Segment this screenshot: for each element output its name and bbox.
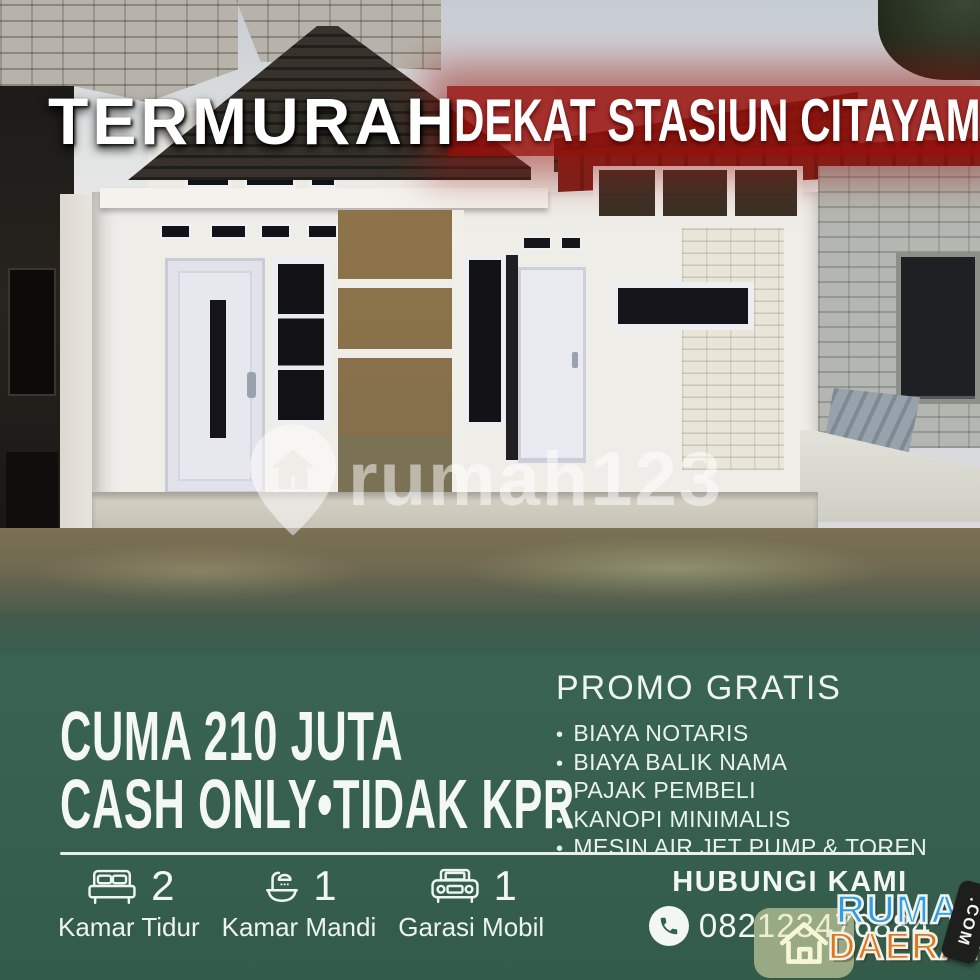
accent-strip	[338, 349, 452, 358]
promo-item-label: BIAYA BALIK NAMA	[573, 749, 787, 776]
bedroom-count: 2	[151, 865, 174, 907]
vent-window	[307, 224, 338, 239]
vent-window	[160, 224, 191, 239]
neighbor-window	[896, 252, 980, 404]
bullet: •	[556, 722, 563, 749]
bedroom-label: Kamar Tidur	[58, 912, 200, 943]
feature-bedrooms: 2 Kamar Tidur	[58, 863, 200, 943]
garage-count: 1	[494, 865, 517, 907]
promo-item: • BIAYA BALIK NAMA	[556, 749, 956, 778]
green-fade	[0, 568, 980, 660]
bath-icon	[261, 865, 303, 907]
map-pin-house-icon	[250, 424, 336, 536]
tall-window	[272, 258, 330, 426]
divider-line	[60, 852, 912, 855]
feature-bedrooms-top: 2	[83, 863, 174, 909]
garage-label: Garasi Mobil	[398, 912, 544, 943]
bullet: •	[556, 836, 563, 863]
promo-section: PROMO GRATIS • BIAYA NOTARIS • BIAYA BAL…	[556, 669, 956, 863]
promo-item: • BIAYA NOTARIS	[556, 720, 956, 749]
feature-garage: 1 Garasi Mobil	[398, 863, 544, 943]
letterbox-window	[612, 282, 754, 330]
transom-glass	[599, 170, 655, 216]
dark-opening	[8, 268, 56, 396]
watermark: rumah123	[250, 424, 723, 536]
property-ad-poster: TERMURAH DEKAT STASIUN CITAYAM rumah123 …	[0, 0, 980, 980]
promo-item: • KANOPI MINIMALIS	[556, 806, 956, 835]
features-row: 2 Kamar Tidur 1 Kama	[58, 863, 544, 943]
promo-item-label: BIAYA NOTARIS	[573, 720, 748, 747]
vent-window	[522, 236, 552, 250]
promo-item: • PAJAK PEMBELI	[556, 777, 956, 806]
door-glass-strip	[210, 300, 226, 438]
bed-icon	[83, 865, 141, 907]
bathroom-label: Kamar Mandi	[222, 912, 377, 943]
bullet: •	[556, 779, 563, 806]
bathroom-count: 1	[313, 865, 336, 907]
brown-accent-panel	[338, 210, 452, 436]
vent-window	[210, 224, 247, 239]
car-icon	[426, 865, 484, 907]
price-headline: CUMA 210 JUTA	[60, 701, 403, 771]
door-handle	[572, 352, 578, 368]
promo-item-label: KANOPI MINIMALIS	[573, 806, 790, 833]
watermark-brand: rumah123	[348, 442, 723, 518]
agency-logo: RUMAH DAERAH .COM	[744, 890, 980, 980]
narrow-window	[464, 255, 506, 427]
transom-glass	[735, 170, 797, 216]
feature-bathrooms-top: 1	[261, 863, 336, 909]
promo-item-label: MESIN AIR JET PUMP & TOREN	[573, 834, 927, 861]
fascia-board	[100, 188, 548, 208]
phone-icon	[649, 906, 689, 946]
bullet: •	[556, 808, 563, 835]
headline-location-band: DEKAT STASIUN CITAYAM	[447, 86, 980, 156]
transom-panels	[593, 166, 803, 220]
feature-garage-top: 1	[426, 863, 517, 909]
vent-window	[560, 236, 582, 250]
promo-item: • MESIN AIR JET PUMP & TOREN	[556, 834, 956, 863]
promo-list: • BIAYA NOTARIS • BIAYA BALIK NAMA • PAJ…	[556, 720, 956, 863]
door-handle	[247, 372, 256, 398]
headline-location: DEKAT STASIUN CITAYAM	[447, 91, 980, 151]
promo-item-label: PAJAK PEMBELI	[573, 777, 755, 804]
promo-title: PROMO GRATIS	[556, 669, 956, 708]
feature-bathrooms: 1 Kamar Mandi	[222, 863, 377, 943]
agency-tld: .COM	[952, 896, 980, 949]
transom-glass	[663, 170, 727, 216]
payment-terms: CASH ONLY•TIDAK KPR	[60, 769, 575, 839]
vent-window	[260, 224, 291, 239]
headline-termurah: TERMURAH	[48, 88, 458, 154]
bullet: •	[556, 751, 563, 778]
accent-strip	[338, 279, 452, 288]
